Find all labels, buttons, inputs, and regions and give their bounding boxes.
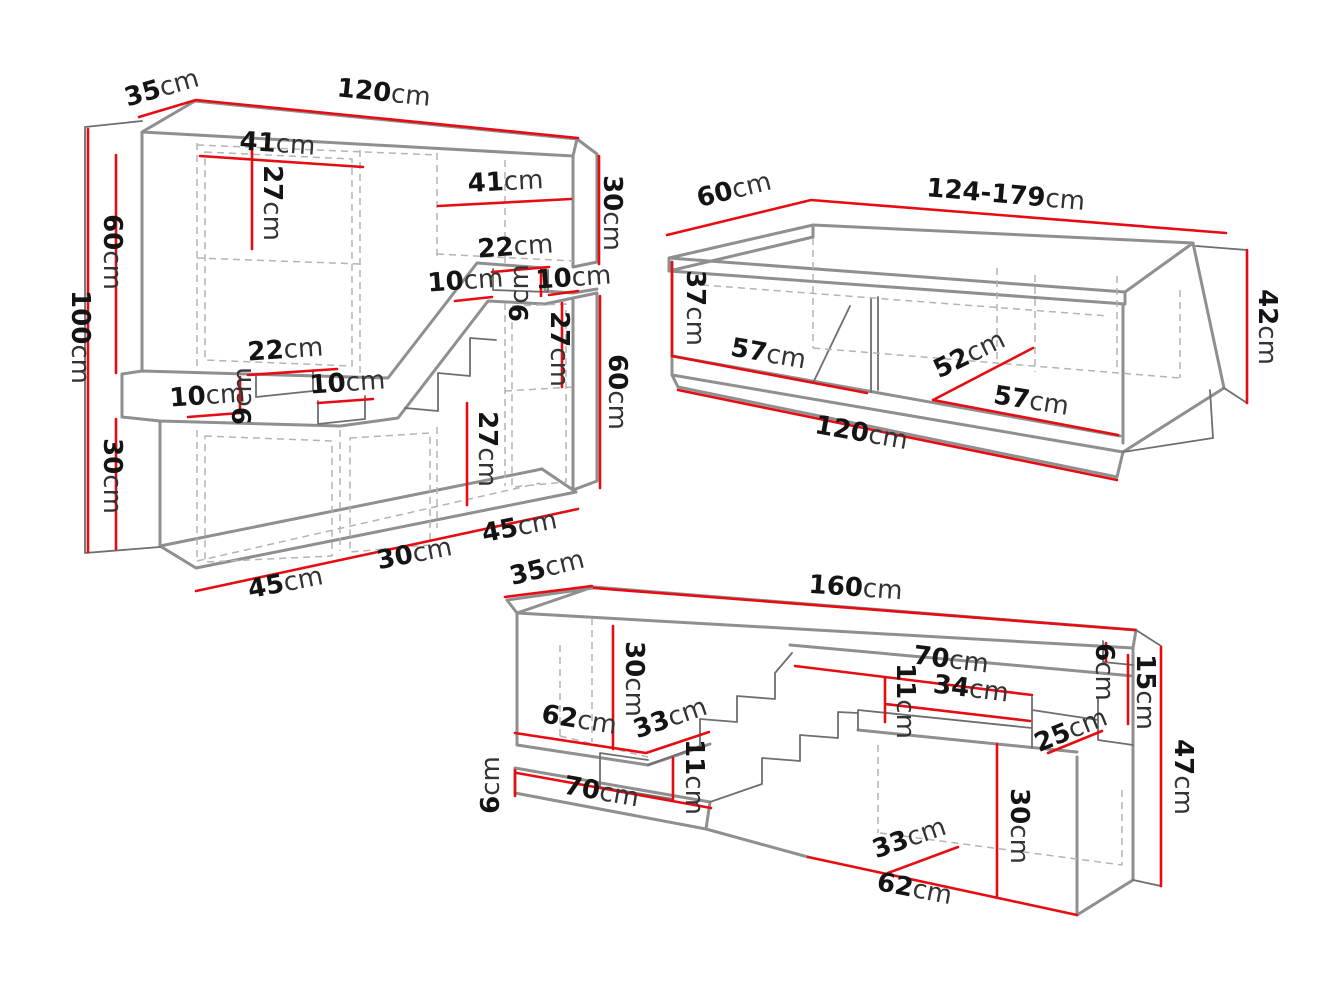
tv-stand-dim-floor-62-left: 62cm <box>539 699 619 740</box>
tv-stand-dim-strip-6-left: 6cm <box>476 756 506 814</box>
wall-unit-dim-shelf-41-right: 41cm <box>467 165 544 199</box>
tv-stand-dim-height-15: 15cm <box>1130 654 1160 730</box>
wall-unit-dim-width-30-bottom: 30cm <box>374 532 454 576</box>
coffee-table-dim-width-120: 120cm <box>813 410 911 456</box>
tv-stand-dim-depth-35: 35cm <box>507 545 588 592</box>
wall-unit-dim-shelf-41-left: 41cm <box>239 126 317 161</box>
wall-unit-dim-width-45-right: 45cm <box>479 505 559 549</box>
wall-unit-dim-notch-10-c: 10cm <box>169 378 247 413</box>
coffee-table-dim-inner-height-37: 37cm <box>680 270 710 346</box>
wall-unit-dim-shelf-27-mid: 27cm <box>544 311 574 387</box>
tv-stand-labels: 35cm160cm30cm70cm34cm11cm6cm15cm62cm33cm… <box>476 545 1198 912</box>
coffee-table-dim-depth-60: 60cm <box>694 167 775 214</box>
wall-unit-dim-height-30-left: 30cm <box>97 438 127 514</box>
coffee-table-dim-height-42: 42cm <box>1252 289 1282 365</box>
wall-unit-dim-height-60-left: 60cm <box>97 214 127 290</box>
coffee-table-dim-inner-52: 52cm <box>929 325 1010 385</box>
wall-unit-drawing: 35cm120cm41cm27cm41cm30cm22cm10cm9cm10cm… <box>65 63 632 605</box>
tv-stand-dim-width-160: 160cm <box>808 570 904 606</box>
wall-unit-dim-notch-10-a: 10cm <box>427 263 505 298</box>
tv-stand-drawing: 35cm160cm30cm70cm34cm11cm6cm15cm62cm33cm… <box>476 545 1198 915</box>
furniture-diagram-canvas: 35cm120cm41cm27cm41cm30cm22cm10cm9cm10cm… <box>0 0 1334 1000</box>
wall-unit-dim-height-60-right: 60cm <box>602 354 632 430</box>
tv-stand-dim-floor-33-right: 33cm <box>869 812 950 865</box>
tv-stand-dim-strip-70-left: 70cm <box>561 771 641 814</box>
wall-unit-dim-notch-9-right: 9cm <box>505 264 535 322</box>
tv-stand-dim-slot-11-left: 11cm <box>679 739 709 815</box>
wall-unit-dim-width-120: 120cm <box>336 73 433 113</box>
tv-stand-dim-slot-11-right: 11cm <box>890 663 920 739</box>
tv-stand-dim-door-30-right: 30cm <box>1004 788 1034 864</box>
wall-unit-dim-notch-10-d: 10cm <box>309 365 387 400</box>
coffee-table-drawing: 60cm124-179cm37cm57cm52cm57cm120cm42cm <box>667 167 1282 480</box>
wall-unit-dim-depth-35: 35cm <box>121 63 202 113</box>
tv-stand-dim-width-62-bottom: 62cm <box>874 867 954 911</box>
tv-stand-dim-height-47: 47cm <box>1168 739 1198 815</box>
wall-unit-dim-notch-10-b: 10cm <box>535 260 613 295</box>
wall-unit-dim-height-30-right: 30cm <box>597 175 627 251</box>
tv-stand-dim-shelf-34: 34cm <box>932 670 1011 709</box>
tv-stand-dim-inner-height-30: 30cm <box>619 641 649 717</box>
wall-unit-dim-notch-22-right: 22cm <box>477 229 555 264</box>
wall-unit-dim-height-100: 100cm <box>65 290 95 384</box>
furniture-dimension-sheet: 35cm120cm41cm27cm41cm30cm22cm10cm9cm10cm… <box>0 0 1334 1000</box>
wall-unit-dim-shelf-27-left: 27cm <box>257 165 287 241</box>
tv-stand-dim-lip-6-right: 6cm <box>1089 643 1119 701</box>
wall-unit-dim-shelf-27-bottom: 27cm <box>472 411 502 487</box>
wall-unit-dim-notch-22-left: 22cm <box>247 332 325 367</box>
wall-unit-dim-width-45-left: 45cm <box>245 561 325 605</box>
